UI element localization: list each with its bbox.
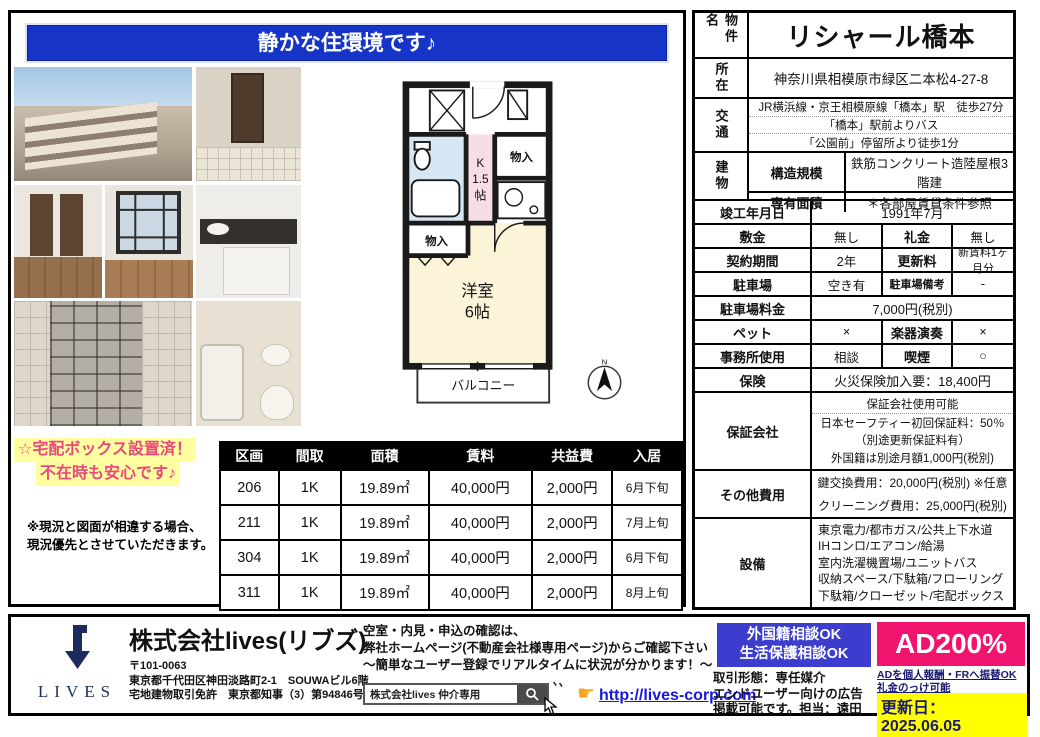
structure-value: 鉄筋コンクリート造陸屋根3階建 <box>844 153 1013 191</box>
col-unit: 区画 <box>220 442 279 470</box>
parking-value: 空き有 <box>810 273 881 295</box>
company-postal: 〒101-0063 <box>129 659 369 674</box>
guarantor-label: 保証会社 <box>695 393 810 469</box>
floorplan-drawing: 物入 K 1.5 帖 物入 洋室 6帖 バルコニー N <box>363 75 678 419</box>
insurance-label: 保険 <box>695 369 810 391</box>
search-icon <box>525 687 539 701</box>
company-logo: LIVES <box>31 623 123 702</box>
room-window <box>116 191 181 254</box>
deal-line2: エンドユーザー向けの広告 <box>713 687 863 703</box>
ad-rate-badge: AD200% <box>877 622 1025 666</box>
access-label: 交通 <box>695 99 747 151</box>
guarantor-line2: （別途更新保証料有） <box>812 432 1013 450</box>
unit-no: 304 <box>220 540 279 575</box>
balcony-label: バルコニー <box>451 378 515 393</box>
unit-layout: 1K <box>279 470 341 505</box>
row-insurance: 保険 火災保険加入要：18,400円 <box>695 369 1013 393</box>
unit-movein: 6月下旬 <box>612 540 682 575</box>
info-line1: 空室・内見・申込の確認は、 <box>363 623 712 640</box>
closet-top-label: 物入 <box>510 150 533 164</box>
unit-area: 19.89㎡ <box>341 540 429 575</box>
unit-layout: 1K <box>279 540 341 575</box>
instrument-value: × <box>951 321 1013 343</box>
renewal-label: 更新料 <box>881 249 951 271</box>
mouse-cursor-icon <box>543 697 559 715</box>
hallway-tile-floor <box>196 147 301 181</box>
unit-fee: 2,000円 <box>532 470 612 505</box>
info-line3: ～簡単なユーザー登録でリアルタイムに状況が分かります！～ <box>363 657 712 674</box>
renewal-value: 新賃料1ヶ月分 <box>951 249 1013 271</box>
photo-room-doors <box>14 185 102 298</box>
unit-fee: 2,000円 <box>532 505 612 540</box>
disclaimer-line2: 現況優先とさせていただきます。 <box>27 536 213 554</box>
photo-bathroom <box>196 301 301 426</box>
click-emphasis-icon: 、、 <box>552 672 573 692</box>
photo-kitchen <box>196 185 301 298</box>
unit-rent: 40,000円 <box>429 540 533 575</box>
toilet-bowl <box>415 149 430 170</box>
main-flyer-panel: 静かな住環境です♪ <box>8 10 686 607</box>
main-room-label-1: 洋室 <box>461 283 493 301</box>
insurance-value: 火災保険加入要：18,400円 <box>810 369 1013 391</box>
other-fees-line2: クリーニング費用：25,000円(税別) <box>812 494 1013 517</box>
unit-area: 19.89㎡ <box>341 575 429 610</box>
access-line1: JR横浜線・京王相模原線「橋本」駅 徒歩27分 <box>749 99 1013 117</box>
ad-note1: ADを個人報酬・FRへ振替OK <box>877 669 1016 682</box>
unit-area: 19.89㎡ <box>341 505 429 540</box>
row-parking-fee: 駐車場料金 7,000円(税別) <box>695 297 1013 321</box>
guarantor-line1: 日本セーフティー初回保証料：50％ <box>812 414 1013 432</box>
toilet <box>260 385 294 420</box>
row-property-name: 物件名 リシャール橋本 <box>695 13 1013 59</box>
unit-rent: 40,000円 <box>429 575 533 610</box>
unit-row: 304 1K 19.89㎡ 40,000円 2,000円 6月下旬 <box>220 540 682 575</box>
completion-label: 竣工年月日 <box>695 201 810 223</box>
unit-rent: 40,000円 <box>429 470 533 505</box>
col-area: 面積 <box>341 442 429 470</box>
delivery-box-note: ☆宅配ボックス設置済！ 不在時も安心です♪ <box>14 438 196 486</box>
unit-movein: 7月上旬 <box>612 505 682 540</box>
kitchen-label-2: 1.5 <box>472 172 489 186</box>
unit-row: 311 1K 19.89㎡ 40,000円 2,000円 8月上旬 <box>220 575 682 610</box>
deal-line3: 掲載可能です。担当：遠田 <box>713 702 863 718</box>
other-fees-line1: 鍵交換費用：20,000円(税別) ※任意 <box>812 471 1013 494</box>
photo-mailboxes <box>14 301 192 426</box>
address-label: 所在 <box>695 59 747 97</box>
pointing-finger-icon: ☛ <box>577 681 595 706</box>
row-guarantor: 保証会社 保証会社使用可能 日本セーフティー初回保証料：50％ （別途更新保証料… <box>695 393 1013 471</box>
equipment-label: 設備 <box>695 519 810 607</box>
pet-label: ペット <box>695 321 810 343</box>
office-label: 事務所使用 <box>695 345 810 367</box>
keymoney-label: 礼金 <box>881 225 951 247</box>
unit-no: 206 <box>220 470 279 505</box>
catchphrase-banner: 静かな住環境です♪ <box>25 23 669 63</box>
delivery-box-note-line1: ☆宅配ボックス設置済！ <box>14 438 196 462</box>
row-office-smoking: 事務所使用 相談 喫煙 ○ <box>695 345 1013 369</box>
parking-fee-label: 駐車場料金 <box>695 297 810 319</box>
unit-layout: 1K <box>279 575 341 610</box>
closet-left-label: 物入 <box>425 234 448 248</box>
kitchen-label-3: 帖 <box>474 188 486 202</box>
unit-fee: 2,000円 <box>532 575 612 610</box>
unit-movein: 8月上旬 <box>612 575 682 610</box>
building-label: 建物 <box>695 153 747 199</box>
other-fees-label: その他費用 <box>695 471 810 517</box>
parking-note-value: - <box>951 273 1013 295</box>
consult-ok-badge: 外国籍相談OK 生活保護相談OK <box>717 623 871 667</box>
bathtub-plan <box>412 180 460 216</box>
pet-value: × <box>810 321 881 343</box>
smoking-value: ○ <box>951 345 1013 367</box>
delivery-box-note-line2: 不在時も安心です♪ <box>36 462 180 486</box>
lives-logo-icon <box>57 623 97 675</box>
access-line3: 「公園前」停留所より徒歩1分 <box>749 134 1013 151</box>
disclaimer-line1: ※現況と図面が相違する場合、 <box>27 518 213 536</box>
photo-room-window <box>105 185 193 298</box>
unit-row: 211 1K 19.89㎡ 40,000円 2,000円 7月上旬 <box>220 505 682 540</box>
guarantor-head: 保証会社使用可能 <box>812 395 1013 414</box>
parking-fee-value: 7,000円(税別) <box>810 297 1013 319</box>
search-input[interactable]: 株式会社lives 仲介専用 <box>363 683 549 705</box>
equipment-line3: 室内洗濯機置場/ユニットバス <box>818 555 1007 572</box>
access-line2: 「橋本」駅前よりバス <box>749 117 1013 135</box>
contract-label: 契約期間 <box>695 249 810 271</box>
row-address: 所在 神奈川県相模原市緑区二本松4-27-8 <box>695 59 1013 99</box>
instrument-label: 楽器演奏 <box>881 321 951 343</box>
row-pet-instrument: ペット × 楽器演奏 × <box>695 321 1013 345</box>
guarantor-line3: 外国籍は別途月額1,000円(税別) <box>812 449 1013 467</box>
unit-area: 19.89㎡ <box>341 470 429 505</box>
col-movein: 入居 <box>612 442 682 470</box>
floorplan-disclaimer: ※現況と図面が相違する場合、 現況優先とさせていただきます。 <box>27 518 213 554</box>
structure-label: 構造規模 <box>749 153 844 191</box>
footer-panel: LIVES 株式会社lives(リブズ) 〒101-0063 東京都千代田区神田… <box>8 614 1030 716</box>
closet-door <box>60 194 83 256</box>
row-contract-renewal: 契約期間 2年 更新料 新賃料1ヶ月分 <box>695 249 1013 273</box>
col-rent: 賃料 <box>429 442 533 470</box>
svg-text:N: N <box>602 357 608 366</box>
unit-movein: 6月下旬 <box>612 470 682 505</box>
unit-fee: 2,000円 <box>532 540 612 575</box>
hallway-door <box>231 73 265 144</box>
unit-rent: 40,000円 <box>429 505 533 540</box>
unit-no: 211 <box>220 505 279 540</box>
contract-value: 2年 <box>810 249 881 271</box>
property-name-label: 物件名 <box>695 13 747 57</box>
completion-value: 1991年7月 <box>810 201 1013 223</box>
property-details-table: 物件名 リシャール橋本 所在 神奈川県相模原市緑区二本松4-27-8 交通 JR… <box>692 10 1016 610</box>
equipment-line2: IHコンロ/エアコン/給湯 <box>818 538 1007 555</box>
bathtub <box>200 344 244 422</box>
property-name-value: リシャール橋本 <box>747 13 1013 57</box>
unit-no: 311 <box>220 575 279 610</box>
parking-note-label: 駐車場備考 <box>881 273 951 295</box>
consult-line1: 外国籍相談OK <box>717 626 871 645</box>
building-balconies <box>25 102 157 171</box>
photo-entrance-hallway <box>196 67 301 181</box>
company-name: 株式会社lives(リブズ) <box>129 621 369 656</box>
row-completion: 竣工年月日 1991年7月 <box>695 201 1013 225</box>
company-license: 宅地建物取引免許 東京都知事（3）第94846号 <box>129 688 369 703</box>
catchphrase-text: 静かな住環境です♪ <box>258 32 437 55</box>
company-address: 東京都千代田区神田淡路町2-1 SOUWAビル6階 <box>129 674 369 689</box>
logo-wordmark: LIVES <box>31 682 123 702</box>
col-layout: 間取 <box>279 442 341 470</box>
address-value: 神奈川県相模原市緑区二本松4-27-8 <box>747 59 1013 97</box>
bathroom-sink <box>261 344 290 366</box>
wood-floor <box>105 260 193 298</box>
row-equipment: 設備 東京電力/都市ガス/公共上下水道 IHコンロ/エアコン/給湯 室内洗濯機置… <box>695 519 1013 607</box>
main-room-label-2: 6帖 <box>465 304 490 322</box>
deposit-label: 敷金 <box>695 225 810 247</box>
unit-row: 206 1K 19.89㎡ 40,000円 2,000円 6月下旬 <box>220 470 682 505</box>
equipment-line1: 東京電力/都市ガス/公共上下水道 <box>818 522 1007 539</box>
photo-building-exterior <box>14 67 192 181</box>
row-access: 交通 JR横浜線・京王相模原線「橋本」駅 徒歩27分 「橋本」駅前よりバス 「公… <box>695 99 1013 153</box>
mailbox-units <box>50 301 143 426</box>
kitchen-label-1: K <box>476 156 484 170</box>
deposit-value: 無し <box>810 225 881 247</box>
compass-icon: N <box>588 357 620 398</box>
equipment-line4: 収納スペース/下駄箱/フローリング <box>818 571 1007 588</box>
consult-line2: 生活保護相談OK <box>717 645 871 664</box>
search-input-text[interactable]: 株式会社lives 仲介専用 <box>365 685 517 703</box>
smoking-label: 喫煙 <box>881 345 951 367</box>
row-building: 建物 構造規模 鉄筋コンクリート造陸屋根3階建 専有面積 ＊各部屋賃貸条件参照 <box>695 153 1013 201</box>
unit-layout: 1K <box>279 505 341 540</box>
col-fee: 共益費 <box>532 442 612 470</box>
closet-door <box>30 194 53 256</box>
units-header-row: 区画 間取 面積 賃料 共益費 入居 <box>220 442 682 470</box>
row-other-fees: その他費用 鍵交換費用：20,000円(税別) ※任意 クリーニング費用：25,… <box>695 471 1013 519</box>
equipment-line5: 下駄箱/クローゼット/宅配ボックス <box>818 588 1007 605</box>
kitchen-cabinet <box>223 247 290 294</box>
wood-floor <box>14 257 102 298</box>
info-line2: 弊社ホームページ(不動産会社様専用ページ)からご確認下さい <box>363 640 712 657</box>
units-table: 区画 間取 面積 賃料 共益費 入居 206 1K 19.89㎡ 40,000円… <box>219 441 683 611</box>
office-value: 相談 <box>810 345 881 367</box>
row-parking: 駐車場 空き有 駐車場備考 - <box>695 273 1013 297</box>
updated-date: 更新日：2025.06.05 <box>877 693 1027 737</box>
parking-label: 駐車場 <box>695 273 810 295</box>
deal-line1: 取引形態：専任媒介 <box>713 671 863 687</box>
